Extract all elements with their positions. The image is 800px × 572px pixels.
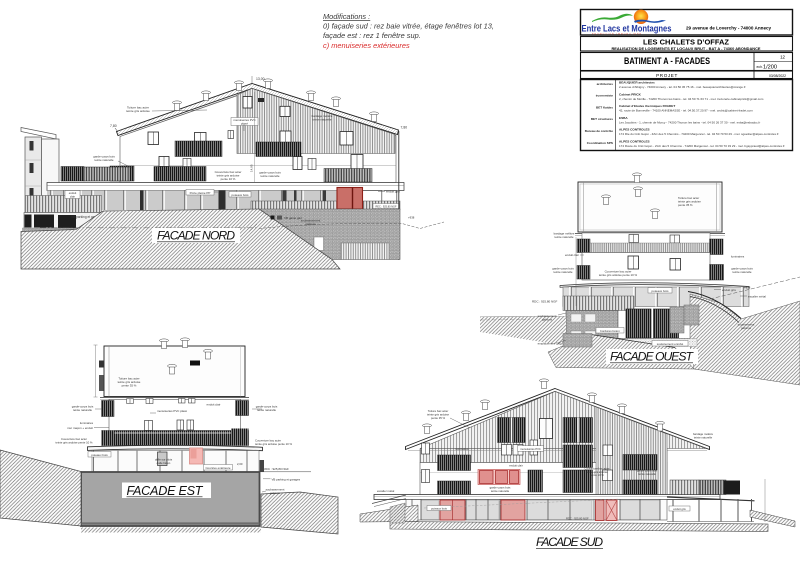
svg-text:soutènement enrobé: soutènement enrobé [657, 342, 684, 346]
svg-text:dalle sur plotsdalle béton: dalle sur plotsdalle béton [155, 458, 173, 465]
svg-text:enduit clair: enduit clair [509, 464, 523, 468]
svg-text:BEAUQUIER architectes: BEAUQUIER architectes [619, 81, 655, 85]
svg-text:2, chemin de Morille - 74200 T: 2, chemin de Morille - 74200 Thonon les … [619, 97, 764, 101]
svg-text:7,80: 7,80 [401, 126, 408, 130]
svg-text:12: 12 [780, 55, 785, 60]
svg-text:VB gaine gaz: VB gaine gaz [284, 216, 302, 220]
svg-text:FACADE SUD: FACADE SUD [536, 535, 603, 549]
svg-text:RDC : 925,80 NGF: RDC : 925,80 NGF [566, 517, 589, 521]
svg-text:Coordination SPS: Coordination SPS [587, 141, 613, 145]
svg-text:ALPES CONTROLES: ALPES CONTROLES [619, 128, 650, 132]
svg-text:bardage mélèzeteinte naturelle: bardage mélèzeteinte naturelle [312, 114, 333, 122]
svg-text:1/200: 1/200 [763, 65, 777, 71]
svg-text:luminaires: luminaires [731, 255, 745, 259]
svg-text:Les Jacobins - 1, chemin de Mo: Les Jacobins - 1, chemin de Morcy - 7420… [619, 120, 760, 124]
svg-text:c) menuiseries extérieures: c) menuiseries extérieures [323, 41, 410, 50]
svg-text:2,00: 2,00 [237, 462, 243, 466]
svg-text:RDC : 925,80 NGF: RDC : 925,80 NGF [532, 300, 558, 304]
svg-text:13,00: 13,00 [256, 77, 265, 81]
svg-text:poteaux bois: poteaux bois [91, 453, 108, 457]
svg-text:emplacement OM: emplacement OM [538, 342, 561, 346]
svg-text:PROJET: PROJET [656, 73, 678, 78]
svg-text:FACADE EST: FACADE EST [127, 484, 204, 498]
svg-text:luminaires: luminaires [456, 447, 469, 451]
svg-text:+938: +938 [744, 286, 751, 290]
svg-text:poteaux bois: poteaux bois [431, 506, 447, 510]
svg-text:REC : 925,80 NGF: REC : 925,80 NGF [376, 205, 397, 208]
svg-text:PROMOTION IMMOBILIERE: PROMOTION IMMOBILIERE [592, 34, 642, 36]
svg-text:façade est : rez 1 fenêtre sup: façade est : rez 1 fenêtre sup. [323, 31, 421, 40]
svg-text:architectes: architectes [597, 82, 614, 86]
svg-text:7,80: 7,80 [110, 124, 117, 128]
svg-text:Bureau de contrôle: Bureau de contrôle [585, 129, 613, 133]
svg-text:Toiture bac acierteinte gris a: Toiture bac acierteinte gris ardoise [126, 106, 150, 114]
svg-text:garde-corps boisteinte naturel: garde-corps boisteinte naturelle [637, 469, 658, 476]
svg-text:03/08/2022: 03/08/2022 [769, 74, 786, 78]
svg-text:Porte pleine PP: Porte pleine PP [190, 191, 211, 195]
svg-text:VB parking et garages: VB parking et garages [272, 477, 301, 481]
svg-text:FACADE OUEST: FACADE OUEST [610, 350, 695, 364]
svg-text:Entre Lacs et Montagnes: Entre Lacs et Montagnes [582, 24, 672, 34]
svg-text:garde-corps boisteinte naturel: garde-corps boisteinte naturelle [256, 404, 278, 412]
svg-text:BET structures: BET structures [591, 117, 613, 121]
svg-text:BET fluides: BET fluides [596, 105, 613, 109]
svg-text:garde-corps boisteinte naturel: garde-corps boisteinte naturelle [259, 171, 281, 179]
svg-text:RDC : 925,80 NGF: RDC : 925,80 NGF [264, 467, 290, 471]
svg-text:garde-corps boisteinte naturel: garde-corps boisteinte naturelle [490, 486, 511, 493]
svg-text:ESBA: ESBA [619, 116, 628, 120]
svg-text:enduit clair: enduit clair [565, 253, 579, 257]
svg-text:garde-corps boisteinte naturel: garde-corps boisteinte naturelle [731, 267, 753, 275]
svg-text:mur maçon + enduit: mur maçon + enduit [67, 426, 93, 430]
svg-text:Modifications :: Modifications : [323, 12, 370, 21]
svg-text:poteaux bois: poteaux bois [651, 289, 669, 293]
svg-text:ech.: ech. [757, 65, 763, 69]
svg-text:+938: +938 [408, 216, 415, 220]
svg-text:luminaires: luminaires [80, 421, 94, 425]
svg-text:escalier métal: escalier métal [377, 489, 395, 493]
svg-text:FACADE NORD: FACADE NORD [157, 229, 235, 243]
svg-text:14,95: 14,95 [250, 164, 254, 172]
svg-text:économiste: économiste [596, 94, 613, 98]
svg-text:29 avenue de Loverchy - 74000: 29 avenue de Loverchy - 74000 Annecy [686, 26, 772, 31]
svg-text:42, route de Bonneville - 7410: 42, route de Bonneville - 74100 ANNEMASS… [619, 109, 753, 113]
svg-text:REALISATION DE LOGEMENTS ET LO: REALISATION DE LOGEMENTS ET LOCAUX BRUT … [611, 46, 760, 51]
svg-text:escalier métal: escalier métal [748, 295, 766, 299]
svg-text:bordures béton: bordures béton [600, 329, 620, 333]
svg-text:0) façade sud : rez baie vitr: 0) façade sud : rez baie vitrée, étage f… [323, 22, 494, 31]
svg-text:menuiseries PVC: menuiseries PVC [520, 447, 541, 451]
svg-text:menuiseries PVC plaxé: menuiseries PVC plaxé [157, 409, 187, 413]
svg-text:garde-corps boisteinte naturel: garde-corps boisteinte naturelle [93, 155, 115, 163]
svg-text:garde-corps boisteinte naturel: garde-corps boisteinte naturelle [552, 267, 574, 275]
svg-text:enduit clair: enduit clair [207, 402, 221, 406]
svg-text:poteaux bois: poteaux bois [231, 193, 249, 197]
svg-text:Coursive extérieure: Coursive extérieure [205, 466, 230, 470]
svg-text:174 Route du Crêt Gojon - ZAC: 174 Route du Crêt Gojon - ZAC des 5 Chem… [619, 144, 785, 148]
svg-text:BATIMENT A - FACADES: BATIMENT A - FACADES [624, 56, 710, 66]
svg-text:174 Rte du Crêt Gojon - ZAC de: 174 Rte du Crêt Gojon - ZAC des 5 Chemin… [619, 132, 779, 136]
svg-text:ALPES CONTROLES: ALPES CONTROLES [619, 140, 650, 144]
svg-text:garde-corps boisteinte naturel: garde-corps boisteinte naturelle [72, 404, 94, 412]
svg-text:Cabinet d’Etudes thermiques FR: Cabinet d’Etudes thermiques FRADET [619, 104, 675, 108]
svg-text:enduit gris: enduit gris [673, 507, 686, 511]
svg-text:enduit gris: enduit gris [386, 190, 400, 194]
svg-text:gabions: gabions [305, 222, 316, 226]
svg-text:enduit gris: enduit gris [722, 288, 736, 292]
svg-text:bardage mélèzeteinte naturelle: bardage mélèzeteinte naturelle [693, 432, 714, 439]
svg-text:bardage mélèzeteinte naturelle: bardage mélèzeteinte naturelle [554, 232, 575, 240]
svg-text:2 avenue d’Albigny - 74000 Ann: 2 avenue d’Albigny - 74000 Annecy - tel.… [619, 85, 746, 89]
svg-text:Cabinet PRICK: Cabinet PRICK [619, 92, 642, 96]
